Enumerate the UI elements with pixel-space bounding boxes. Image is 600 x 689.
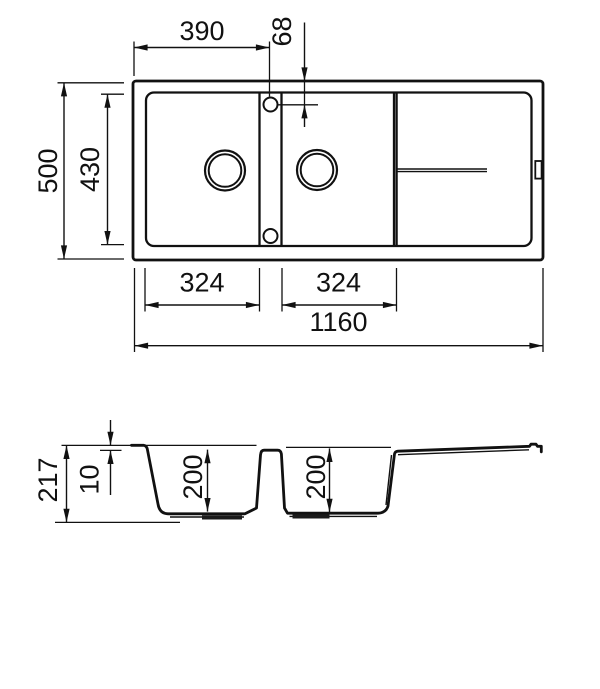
dim-324-bowl2-label: 324 [316, 267, 361, 297]
top-view: 390 68 500 430 324 [33, 16, 543, 352]
dim-68-label: 68 [267, 16, 297, 46]
bowl1-drain [205, 151, 245, 191]
dim-200-bowl1: 200 [178, 450, 208, 512]
dim-324-bowl1: 324 [145, 267, 260, 311]
dim-324-bowl2: 324 [282, 267, 397, 311]
dim-200-bowl2: 200 [301, 448, 331, 512]
dim-500-label: 500 [33, 148, 63, 193]
sink-technical-drawing: 390 68 500 430 324 [0, 0, 600, 689]
dim-200-bowl2-label: 200 [301, 454, 331, 499]
section-view: 217 10 200 200 [33, 420, 541, 522]
dim-430: 430 [75, 94, 124, 244]
bowl1-drain-recess [202, 515, 242, 519]
dim-390: 390 [134, 16, 270, 97]
dim-430-label: 430 [75, 147, 105, 192]
bowl2-drain [297, 150, 337, 190]
bowl2-drain-recess [293, 514, 330, 518]
drawing-svg: 390 68 500 430 324 [0, 0, 600, 689]
tap-hole-top [264, 98, 278, 112]
tap-hole-bottom [264, 229, 278, 243]
dim-217: 217 [33, 445, 67, 522]
bowl1-wall-inner-line [148, 452, 158, 504]
dim-324-bowl1-label: 324 [179, 267, 224, 297]
dim-390-label: 390 [179, 16, 224, 46]
overflow-slot [535, 161, 541, 179]
dim-10-label: 10 [74, 464, 104, 494]
dim-217-label: 217 [33, 457, 63, 502]
dim-1160-label: 1160 [309, 307, 367, 337]
dim-200-bowl1-label: 200 [178, 454, 208, 499]
dim-10: 10 [74, 420, 110, 495]
